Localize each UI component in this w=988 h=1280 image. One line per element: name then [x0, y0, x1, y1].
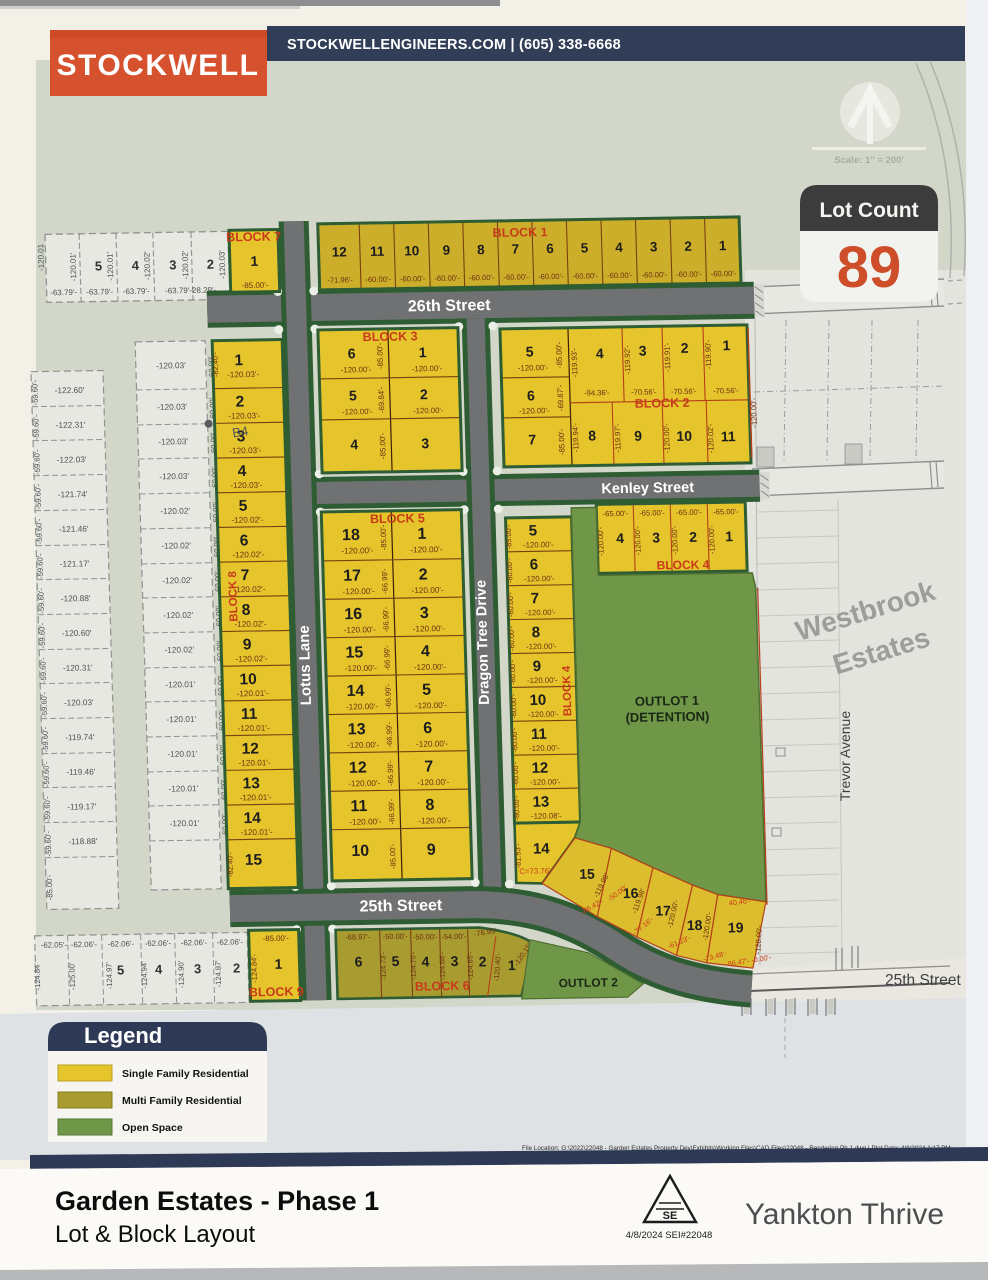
svg-text:-120.03': -120.03' — [157, 401, 187, 411]
svg-text:11: 11 — [241, 706, 258, 723]
svg-text:-62.06'-: -62.06'- — [108, 939, 135, 948]
svg-text:-59.60'-: -59.60'- — [42, 796, 52, 822]
svg-text:-120.03': -120.03' — [217, 250, 227, 279]
svg-text:-119.93'-: -119.93'- — [570, 348, 580, 378]
svg-text:-120.01': -120.01' — [166, 714, 196, 724]
svg-text:-119.91'-: -119.91'- — [662, 342, 672, 372]
svg-text:-120.01': -120.01' — [68, 252, 78, 281]
svg-text:-59.60'-: -59.60'- — [41, 761, 51, 787]
svg-text:-59.60'-: -59.60'- — [35, 553, 45, 579]
svg-text:-60.00'-: -60.00'- — [509, 693, 519, 719]
svg-text:-69.84'-: -69.84'- — [377, 386, 387, 413]
svg-text:9: 9 — [442, 243, 450, 258]
svg-text:2: 2 — [689, 529, 697, 545]
svg-text:-66.99'-: -66.99'- — [381, 606, 391, 632]
svg-text:-120.88': -120.88' — [61, 593, 91, 603]
svg-text:-120.00'-: -120.00'- — [670, 525, 680, 555]
svg-text:-122.31': -122.31' — [56, 419, 86, 429]
svg-text:-59.60'-: -59.60'- — [36, 588, 46, 614]
svg-text:9: 9 — [634, 428, 642, 444]
svg-text:BLOCK 6: BLOCK 6 — [415, 979, 470, 994]
svg-text:-85.00'-: -85.00'- — [241, 281, 268, 290]
svg-text:C=73.76': C=73.76' — [519, 866, 551, 876]
svg-text:Multi Family Residential: Multi Family Residential — [122, 1095, 242, 1107]
svg-text:-119.17': -119.17' — [67, 801, 97, 811]
svg-text:-50.00'-: -50.00'- — [413, 932, 439, 941]
svg-text:-120.00'-: -120.00'- — [416, 739, 449, 749]
svg-text:3: 3 — [169, 257, 177, 272]
svg-text:-120.01: -120.01 — [36, 243, 46, 271]
svg-text:6: 6 — [529, 556, 538, 573]
svg-text:25th Street: 25th Street — [885, 972, 962, 989]
svg-text:-119.94'-: -119.94'- — [571, 423, 581, 453]
svg-text:-62.05'-: -62.05'- — [41, 940, 68, 949]
svg-text:-120.03'-: -120.03'- — [227, 370, 260, 380]
svg-text:-85.00'-: -85.00'- — [379, 524, 389, 550]
svg-text:5: 5 — [422, 682, 431, 699]
svg-text:-120.02'-: -120.02'- — [231, 515, 264, 525]
svg-text:-59.60'-: -59.60'- — [40, 726, 50, 752]
svg-text:-82.40'-: -82.40'- — [210, 352, 220, 378]
svg-text:-60.00'-: -60.00'- — [511, 761, 521, 787]
svg-text:-60.00'-: -60.00'- — [512, 795, 522, 821]
svg-text:9: 9 — [427, 842, 436, 859]
svg-text:4: 4 — [596, 345, 604, 361]
svg-text:-120.03': -120.03' — [156, 360, 186, 370]
svg-text:10: 10 — [676, 428, 692, 444]
svg-text:-119.90'-: -119.90'- — [703, 339, 713, 369]
svg-text:-121.46': -121.46' — [59, 524, 89, 534]
svg-text:-59.60'-: -59.60'- — [32, 449, 42, 475]
svg-text:-124.68'-: -124.68'- — [437, 951, 447, 980]
svg-text:1: 1 — [722, 337, 730, 353]
svg-text:-120.02'-: -120.02'- — [232, 550, 265, 560]
svg-text:Garden Estates - Phase 1: Garden Estates - Phase 1 — [55, 1186, 379, 1216]
svg-text:-65.00'-: -65.00'- — [639, 508, 665, 517]
svg-text:-66.99'-: -66.99'- — [387, 798, 397, 824]
svg-text:-120.03'-: -120.03'- — [230, 481, 263, 491]
svg-text:3: 3 — [420, 605, 429, 622]
svg-text:-59.60'-: -59.60'- — [30, 379, 40, 405]
svg-text:-60.00'-: -60.00'- — [505, 558, 515, 584]
svg-text:Lot & Block Layout: Lot & Block Layout — [55, 1221, 255, 1248]
svg-text:-120.00'-: -120.00'- — [753, 924, 764, 954]
svg-text:-120.00'-: -120.00'- — [523, 540, 554, 550]
svg-text:13: 13 — [348, 721, 366, 738]
svg-text:4: 4 — [237, 463, 246, 480]
svg-text:-85.00'-: -85.00'- — [375, 342, 385, 369]
svg-text:-120.00'-: -120.00'- — [518, 363, 549, 373]
svg-text:18: 18 — [687, 917, 703, 933]
svg-text:1: 1 — [418, 344, 426, 360]
svg-text:BLOCK 4: BLOCK 4 — [561, 665, 575, 716]
svg-text:1: 1 — [417, 526, 426, 543]
svg-text:5: 5 — [238, 498, 247, 515]
svg-text:5: 5 — [528, 522, 537, 539]
svg-text:6: 6 — [423, 720, 432, 737]
svg-text:Yankton Thrive: Yankton Thrive — [745, 1198, 944, 1231]
svg-text:5: 5 — [95, 258, 103, 273]
svg-text:2: 2 — [684, 239, 692, 254]
svg-text:-120.02': -120.02' — [180, 250, 190, 279]
svg-text:Trevor Avenue: Trevor Avenue — [837, 711, 853, 801]
svg-text:-120.00'-: -120.00'- — [342, 587, 375, 597]
svg-text:-60.00'-: -60.00'- — [642, 270, 668, 279]
svg-text:1: 1 — [234, 352, 243, 369]
svg-text:-120.00'-: -120.00'- — [344, 625, 377, 635]
svg-text:3: 3 — [194, 961, 202, 976]
svg-text:-59.60'-: -59.60'- — [31, 414, 41, 440]
svg-text:-59.60'-: -59.60'- — [44, 830, 54, 856]
svg-text:-120.60': -120.60' — [62, 628, 92, 638]
svg-text:2: 2 — [207, 257, 215, 272]
svg-text:89: 89 — [837, 235, 902, 300]
svg-text:11: 11 — [531, 726, 547, 743]
svg-text:-62.06'-: -62.06'- — [145, 939, 172, 948]
svg-text:4/8/2024 SEI#22048: 4/8/2024 SEI#22048 — [626, 1230, 713, 1241]
svg-text:-70.56'-: -70.56'- — [713, 386, 739, 395]
svg-text:13: 13 — [242, 775, 260, 792]
svg-text:-120.01'-: -120.01'- — [239, 793, 272, 803]
svg-text:-119.92'-: -119.92'- — [622, 345, 632, 375]
svg-text:-120.02': -120.02' — [161, 540, 191, 550]
svg-text:15: 15 — [245, 852, 263, 869]
svg-text:OUTLOT 1: OUTLOT 1 — [635, 693, 700, 709]
svg-text:2: 2 — [478, 953, 486, 969]
svg-text:-120.02': -120.02' — [163, 610, 193, 620]
svg-text:-120.01'-: -120.01'- — [237, 724, 270, 734]
svg-text:3: 3 — [652, 529, 660, 545]
svg-text:-120.01': -120.01' — [167, 748, 197, 758]
svg-text:-120.03': -120.03' — [64, 697, 94, 707]
svg-text:6: 6 — [240, 532, 249, 549]
svg-text:-63.79'-: -63.79'- — [123, 287, 150, 296]
svg-text:12: 12 — [349, 760, 367, 777]
svg-text:-120.00'-: -120.00'- — [414, 662, 447, 672]
svg-text:-120.01': -120.01' — [169, 818, 199, 828]
svg-text:-85.00'-: -85.00'- — [388, 843, 398, 869]
svg-text:2: 2 — [418, 566, 427, 583]
svg-text:2: 2 — [420, 386, 428, 402]
svg-text:-120.03': -120.03' — [159, 471, 189, 481]
svg-text:-60.00'-: -60.00'- — [506, 592, 516, 618]
svg-text:-120.00'-: -120.00'- — [349, 817, 382, 827]
svg-text:7: 7 — [530, 590, 539, 607]
svg-text:-65.00'-: -65.00'- — [676, 508, 702, 517]
svg-text:-120.03'-: -120.03'- — [228, 411, 261, 421]
svg-text:-60.00'-: -60.00'- — [469, 273, 495, 282]
svg-text:-120.00'-: -120.00'- — [528, 710, 559, 720]
svg-text:-66.99'-: -66.99'- — [386, 760, 396, 786]
svg-text:-120.03'-: -120.03'- — [229, 446, 262, 456]
svg-text:-62.06'-: -62.06'- — [71, 940, 98, 949]
svg-text:-120.00'-: -120.00'- — [417, 778, 450, 788]
svg-text:-85.00'-: -85.00'- — [263, 934, 290, 943]
svg-text:-120.00'-: -120.00'- — [418, 816, 451, 826]
svg-text:4: 4 — [155, 962, 163, 977]
svg-text:-120.00'-: -120.00'- — [525, 608, 556, 618]
svg-text:10: 10 — [529, 692, 546, 709]
svg-text:-60.00'-: -60.00'- — [400, 274, 426, 283]
svg-text:8: 8 — [588, 427, 596, 443]
svg-text:-120.02'-: -120.02'- — [235, 654, 268, 664]
svg-text:-122.60': -122.60' — [55, 385, 85, 395]
svg-text:4: 4 — [421, 643, 430, 660]
svg-text:BLOCK 2: BLOCK 2 — [635, 396, 690, 411]
svg-text:-60.00'-: -60.00'- — [503, 272, 529, 281]
svg-text:-120.03': -120.03' — [158, 436, 188, 446]
svg-text:-120.00'-: -120.00'- — [412, 364, 443, 374]
svg-text:-120.00'-: -120.00'- — [342, 407, 373, 417]
svg-text:4: 4 — [132, 258, 140, 273]
svg-text:-120.01': -120.01' — [165, 679, 195, 689]
svg-text:-60.00'-: -60.00'- — [434, 274, 460, 283]
svg-text:2: 2 — [233, 961, 241, 976]
svg-text:-120.00'-: -120.00'- — [348, 779, 381, 789]
svg-text:-120.00'-: -120.00'- — [524, 574, 555, 584]
svg-text:-70.56'-: -70.56'- — [671, 387, 697, 396]
svg-text:-122.03': -122.03' — [57, 454, 87, 464]
svg-text:16: 16 — [344, 606, 362, 623]
svg-text:-60.00'-: -60.00'- — [510, 727, 520, 753]
svg-text:BLOCK 5: BLOCK 5 — [370, 511, 425, 526]
svg-text:-94.36'-: -94.36'- — [584, 388, 610, 397]
svg-text:-124.94': -124.94' — [139, 961, 149, 989]
svg-text:8: 8 — [531, 624, 540, 641]
svg-text:11: 11 — [370, 244, 385, 259]
svg-text:-59.60'-: -59.60'- — [33, 483, 43, 509]
svg-text:3: 3 — [450, 953, 458, 969]
svg-text:8: 8 — [477, 242, 485, 257]
svg-text:4: 4 — [615, 240, 623, 255]
svg-text:-120.00'-: -120.00'- — [341, 365, 372, 375]
svg-text:-60.00'-: -60.00'- — [365, 275, 391, 284]
svg-text:-66.99'-: -66.99'- — [380, 568, 390, 594]
svg-text:-120.00'-: -120.00'- — [530, 777, 561, 787]
svg-text:-120.00'-: -120.00'- — [415, 701, 448, 711]
svg-text:-60.00'-: -60.00'- — [711, 269, 737, 278]
svg-text:-60.00'-: -60.00'- — [508, 659, 518, 685]
svg-text:14: 14 — [533, 840, 551, 857]
svg-text:15: 15 — [345, 644, 363, 661]
svg-text:BLOCK 9: BLOCK 9 — [249, 984, 304, 999]
svg-text:-120.00'-: -120.00'- — [633, 526, 643, 556]
svg-text:-68.97'-: -68.97'- — [345, 932, 371, 941]
svg-text:-120.08'-: -120.08'- — [531, 811, 562, 821]
svg-text:-120.00'-: -120.00'- — [345, 664, 378, 674]
svg-text:1: 1 — [250, 253, 258, 269]
svg-text:18: 18 — [342, 527, 360, 544]
svg-text:(DETENTION): (DETENTION) — [625, 709, 709, 725]
svg-text:-124.84'-: -124.84'- — [249, 953, 259, 983]
svg-text:-85.00'-: -85.00'- — [378, 432, 388, 459]
svg-text:-120.00'-: -120.00'- — [413, 406, 444, 416]
svg-text:-120.00'-: -120.00'- — [411, 586, 444, 596]
svg-text:-120.01'-: -120.01'- — [238, 758, 271, 768]
svg-text:9: 9 — [243, 636, 252, 653]
svg-text:-65.00'-: -65.00'- — [713, 507, 739, 516]
svg-text:-124.65'-: -124.65'- — [465, 951, 475, 980]
svg-text:-124.90': -124.90' — [176, 960, 186, 988]
svg-text:-124.87': -124.87' — [213, 960, 223, 988]
svg-text:Open Space: Open Space — [122, 1122, 183, 1134]
svg-text:-60.00'-: -60.00'- — [507, 626, 517, 652]
svg-text:-121.74': -121.74' — [58, 489, 88, 499]
svg-text:19: 19 — [728, 919, 744, 935]
svg-text:-124.84': -124.84' — [32, 963, 42, 991]
svg-text:-81.53'-: -81.53'- — [513, 843, 523, 869]
svg-text:7: 7 — [424, 758, 433, 775]
svg-text:SE: SE — [663, 1210, 678, 1222]
svg-text:Lot Count: Lot Count — [819, 199, 918, 222]
svg-text:-120.01'-: -120.01'- — [241, 828, 274, 838]
svg-text:5: 5 — [117, 962, 125, 977]
svg-text:-66.99'-: -66.99'- — [383, 683, 393, 709]
svg-text:7: 7 — [511, 242, 519, 257]
svg-text:12: 12 — [332, 244, 347, 259]
svg-text:6: 6 — [527, 387, 535, 403]
svg-text:-120.00'-: -120.00'- — [529, 743, 560, 753]
svg-text:BLOCK 7: BLOCK 7 — [226, 229, 281, 244]
svg-text:10: 10 — [239, 671, 257, 688]
svg-text:4: 4 — [350, 436, 358, 452]
svg-text:-66.99'-: -66.99'- — [382, 645, 392, 671]
svg-text:-120.00'-: -120.00'- — [662, 423, 672, 453]
svg-text:-120.02'-: -120.02'- — [706, 423, 716, 453]
svg-text:-121.17': -121.17' — [60, 558, 90, 568]
svg-text:-120.02': -120.02' — [162, 575, 192, 585]
svg-text:3: 3 — [650, 239, 658, 254]
svg-text:-60.00'-: -60.00'- — [572, 271, 598, 280]
svg-text:-63.79'-: -63.79'- — [86, 287, 113, 296]
svg-text:-124.97': -124.97' — [104, 961, 114, 989]
svg-text:-69.87'-: -69.87'- — [556, 384, 566, 411]
svg-text:Legend: Legend — [84, 1023, 162, 1048]
svg-text:-120.00'-: -120.00'- — [413, 624, 446, 634]
svg-text:-120.00'-: -120.00'- — [519, 406, 550, 416]
svg-text:BLOCK 4: BLOCK 4 — [656, 558, 709, 573]
svg-text:-50.00'-: -50.00'- — [383, 932, 409, 941]
svg-text:14: 14 — [243, 810, 261, 827]
svg-text:B4: B4 — [231, 423, 249, 440]
svg-text:-120.00'-: -120.00'- — [527, 676, 558, 686]
svg-text:OUTLOT 2: OUTLOT 2 — [558, 975, 618, 990]
svg-text:-60.00'-: -60.00'- — [607, 271, 633, 280]
svg-text:-120.01'-: -120.01'- — [236, 689, 269, 699]
svg-text:4: 4 — [421, 953, 429, 969]
svg-text:26th Street: 26th Street — [408, 297, 492, 315]
svg-text:-62.06'-: -62.06'- — [181, 938, 208, 947]
svg-text:-63.79'-: -63.79'- — [50, 288, 77, 297]
svg-text:-120.00'-: -120.00'- — [707, 524, 717, 554]
svg-text:-120.01': -120.01' — [168, 783, 198, 793]
svg-text:-124.70'-: -124.70'- — [408, 951, 418, 980]
svg-text:-120.02': -120.02' — [164, 644, 194, 654]
svg-text:5: 5 — [391, 953, 399, 969]
svg-text:7: 7 — [241, 567, 250, 584]
svg-text:6: 6 — [354, 953, 362, 969]
svg-text:11: 11 — [721, 428, 736, 444]
svg-text:-54.00'-: -54.00'- — [441, 932, 467, 941]
svg-text:25th Street: 25th Street — [359, 897, 443, 915]
svg-text:STOCKWELL: STOCKWELL — [57, 49, 260, 82]
svg-text:-59.60'-: -59.60'- — [34, 518, 44, 544]
svg-text:7: 7 — [528, 431, 536, 447]
svg-text:12: 12 — [531, 760, 548, 777]
svg-text:2: 2 — [235, 394, 244, 411]
svg-text:BLOCK 8: BLOCK 8 — [227, 571, 241, 622]
svg-text:-119.74': -119.74' — [65, 732, 95, 742]
svg-text:-60.00'-: -60.00'- — [676, 270, 702, 279]
svg-text:-120.00'-: -120.00'- — [346, 702, 379, 712]
svg-text:5: 5 — [349, 387, 357, 403]
svg-text:STOCKWELLENGINEERS.COM | (605): STOCKWELLENGINEERS.COM | (605) 338-6668 — [287, 37, 621, 53]
svg-text:-120.01': -120.01' — [105, 251, 115, 280]
svg-text:-59.60'-: -59.60'- — [39, 692, 49, 718]
svg-text:11: 11 — [350, 798, 368, 815]
svg-text:6: 6 — [546, 241, 554, 256]
svg-text:14: 14 — [346, 683, 364, 700]
svg-text:-118.88': -118.88' — [68, 836, 98, 846]
svg-text:15: 15 — [579, 866, 595, 882]
svg-text:-120.00'-: -120.00'- — [341, 546, 374, 556]
svg-text:-85.00'-: -85.00'- — [554, 341, 564, 368]
svg-text:-62.06'-: -62.06'- — [217, 937, 244, 946]
svg-text:1: 1 — [719, 238, 727, 253]
svg-text:17: 17 — [343, 568, 361, 585]
svg-text:9: 9 — [532, 658, 541, 675]
svg-text:-85.00'-: -85.00'- — [557, 428, 567, 455]
svg-text:3: 3 — [421, 435, 429, 451]
svg-text:Kenley Street: Kenley Street — [601, 480, 694, 498]
svg-text:-120.00'-: -120.00'- — [526, 642, 557, 652]
svg-text:13: 13 — [532, 793, 549, 810]
svg-text:5: 5 — [525, 343, 533, 359]
svg-text:6: 6 — [347, 345, 355, 361]
svg-text:Lotus Lane: Lotus Lane — [296, 625, 315, 705]
svg-text:3: 3 — [639, 343, 647, 359]
svg-text:-120.02': -120.02' — [160, 506, 190, 516]
svg-text:12: 12 — [241, 740, 259, 757]
svg-text:-124.73'-: -124.73'- — [378, 951, 388, 980]
svg-text:-85.00'-: -85.00'- — [45, 874, 55, 900]
svg-text:-65.00'-: -65.00'- — [603, 509, 629, 518]
svg-text:1: 1 — [725, 528, 733, 544]
svg-text:-120.00'-: -120.00'- — [347, 740, 380, 750]
svg-text:1: 1 — [274, 956, 282, 972]
svg-text:-60.00'-: -60.00'- — [538, 272, 564, 281]
svg-text:-120.31': -120.31' — [63, 662, 93, 672]
svg-text:-119.97'-: -119.97'- — [613, 423, 623, 453]
svg-text:-85.00'-: -85.00'- — [504, 524, 514, 550]
svg-text:-120.00'-: -120.00'- — [410, 545, 443, 555]
svg-text:BLOCK 1: BLOCK 1 — [492, 225, 547, 240]
svg-text:BLOCK 3: BLOCK 3 — [362, 329, 417, 344]
svg-text:-119.46': -119.46' — [66, 766, 96, 776]
svg-text:-66.99'-: -66.99'- — [384, 721, 394, 747]
svg-text:-120.02': -120.02' — [142, 251, 152, 280]
svg-text:-59.60'-: -59.60'- — [38, 657, 48, 683]
svg-text:Scale: 1″ = 200′: Scale: 1″ = 200′ — [834, 155, 904, 166]
svg-text:8: 8 — [425, 797, 434, 814]
svg-text:5: 5 — [581, 240, 589, 255]
svg-text:-82.40'-: -82.40'- — [225, 852, 235, 878]
svg-text:10: 10 — [351, 843, 369, 860]
svg-text:-125.00': -125.00' — [67, 962, 77, 990]
svg-text:8: 8 — [242, 602, 251, 619]
svg-text:2: 2 — [680, 340, 688, 356]
svg-text:Single Family Residential: Single Family Residential — [122, 1068, 249, 1080]
